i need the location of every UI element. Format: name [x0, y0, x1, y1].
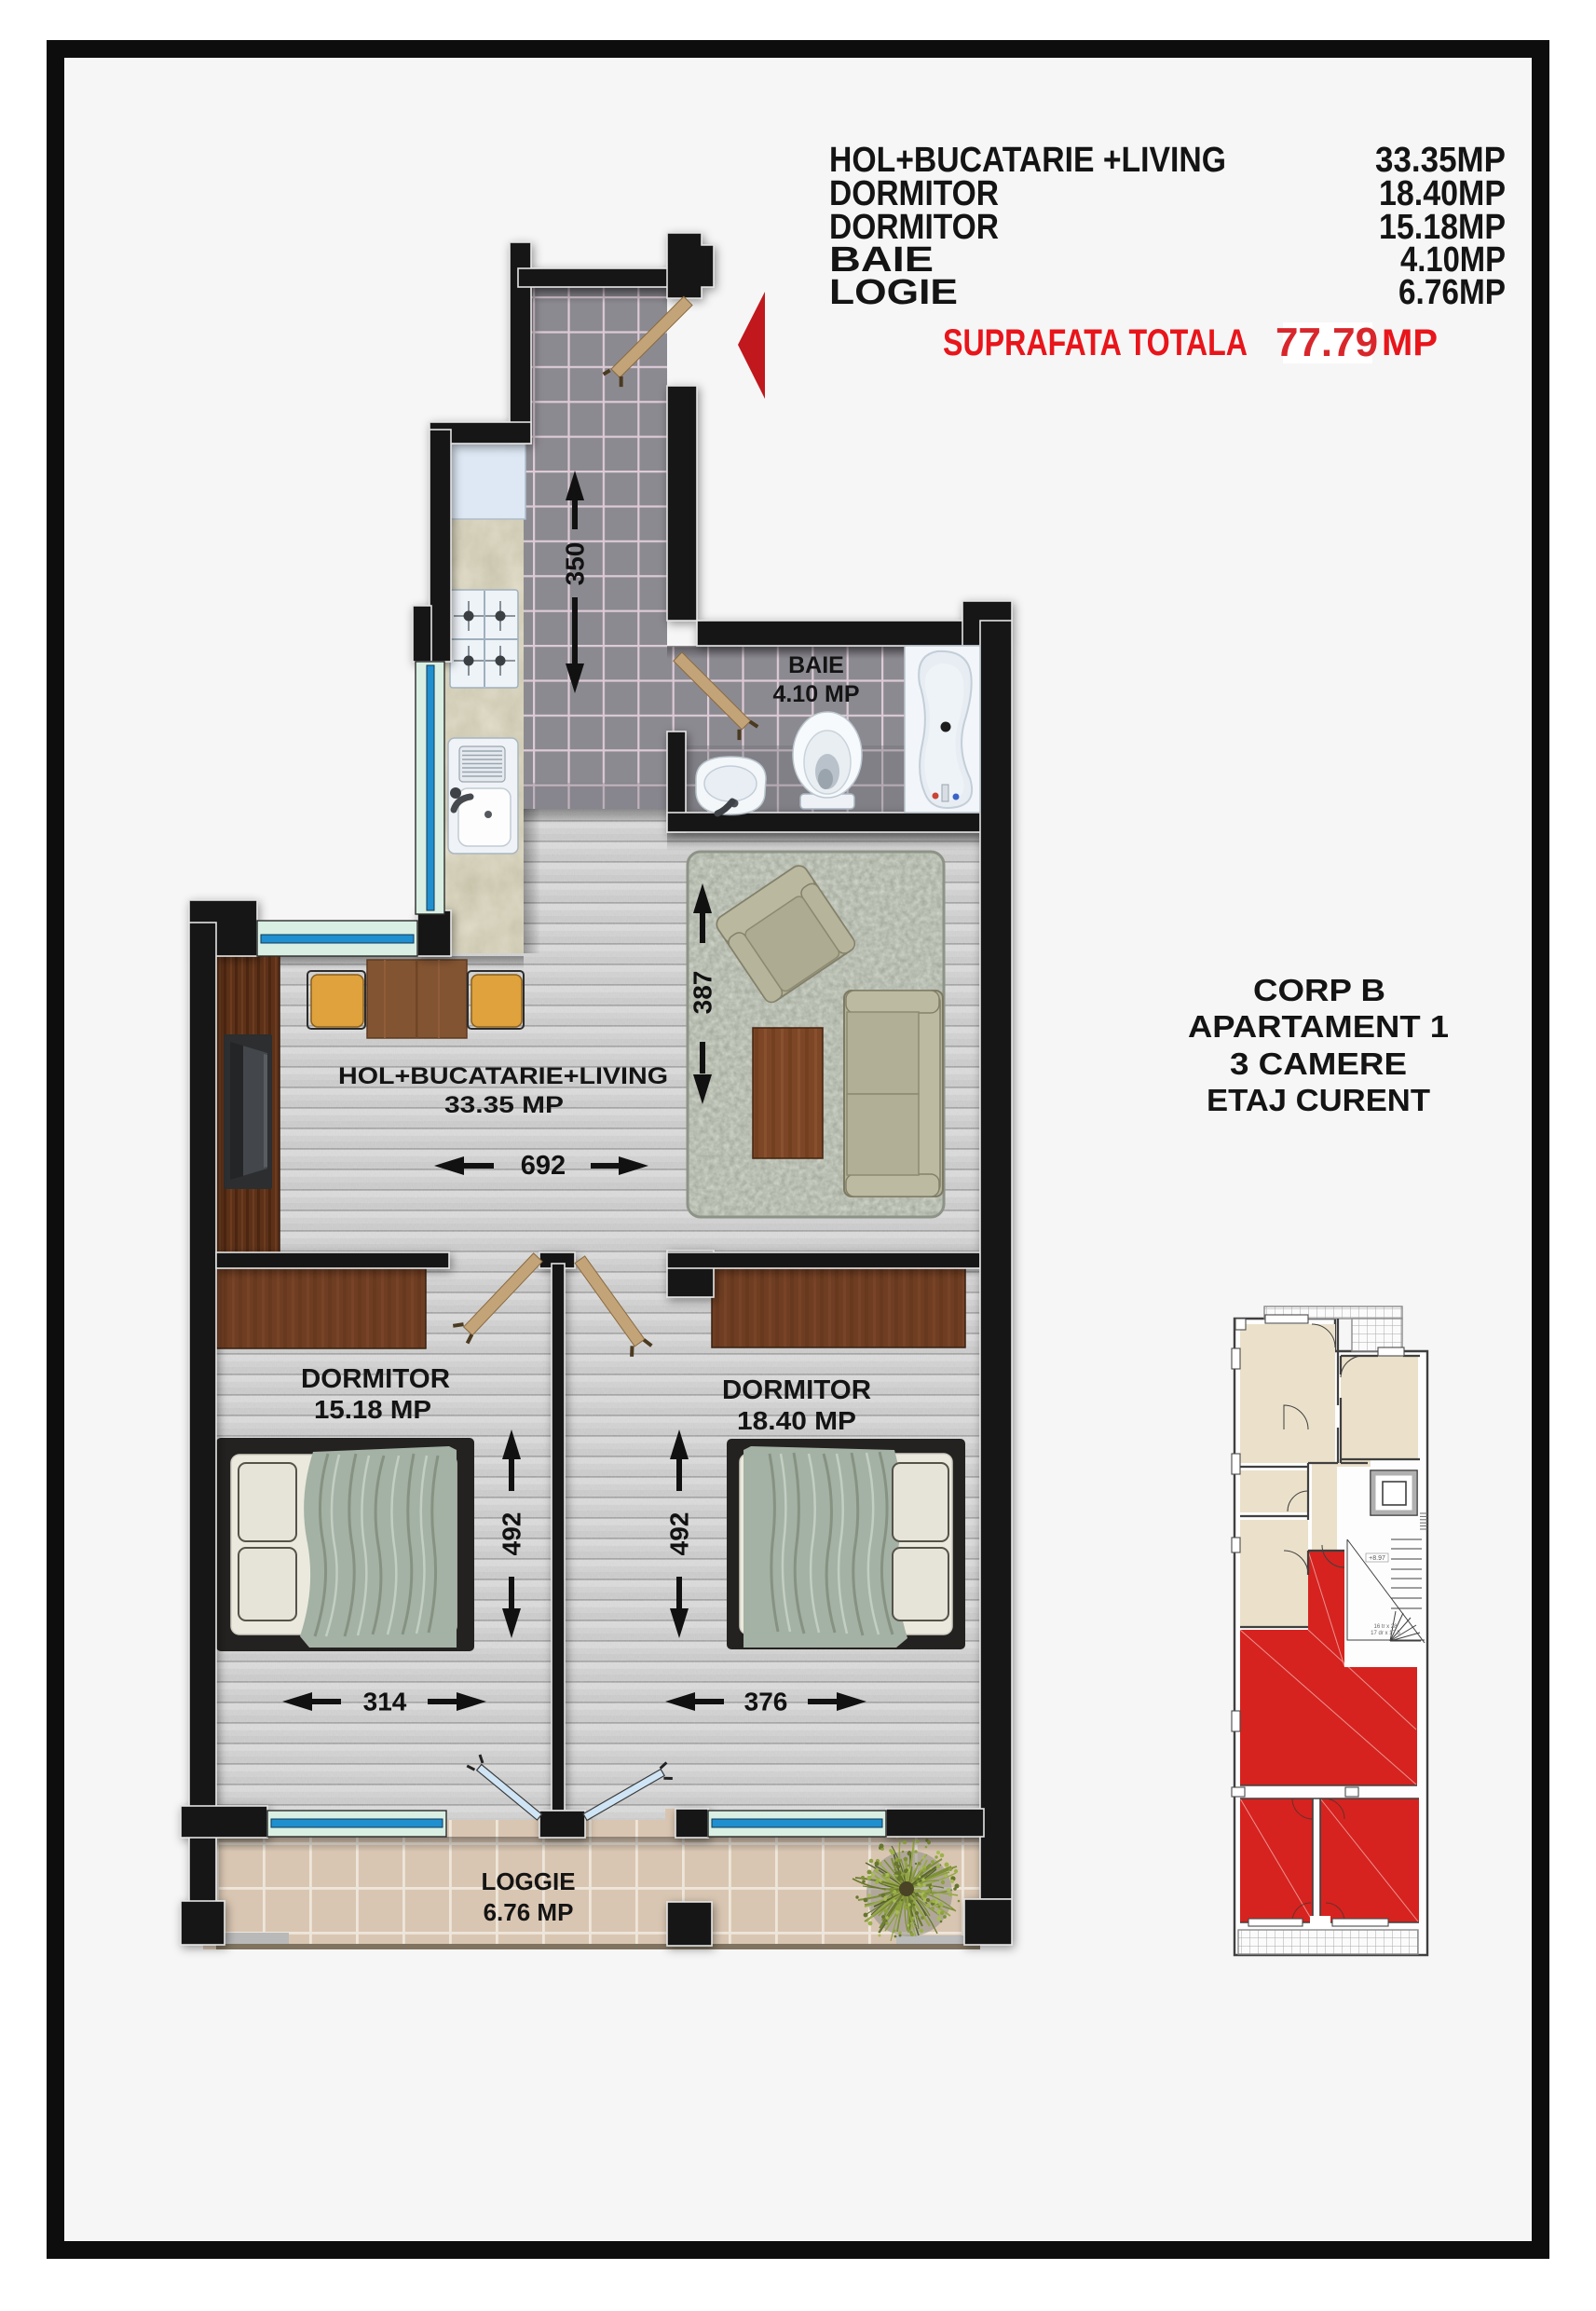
svg-text:17 dr x 17.5: 17 dr x 17.5 — [1371, 1631, 1400, 1636]
svg-text:492: 492 — [498, 1512, 526, 1556]
svg-text:33.35 MP: 33.35 MP — [444, 1092, 564, 1118]
svg-text:HOL+BUCATARIE+LIVING: HOL+BUCATARIE+LIVING — [338, 1063, 668, 1089]
svg-text:387: 387 — [689, 971, 717, 1015]
svg-text:APARTAMENT 1: APARTAMENT 1 — [1188, 1009, 1449, 1044]
svg-text:492: 492 — [665, 1512, 694, 1556]
svg-text:4.10 MP: 4.10 MP — [772, 681, 859, 707]
svg-text:16 tr x 28: 16 tr x 28 — [1373, 1624, 1398, 1630]
svg-text:692: 692 — [521, 1151, 566, 1181]
svg-text:LOGIE: LOGIE — [829, 273, 958, 312]
svg-text:6.76MP: 6.76MP — [1398, 273, 1506, 312]
svg-text:ETAJ CURENT: ETAJ CURENT — [1207, 1083, 1430, 1117]
svg-text:DORMITOR: DORMITOR — [301, 1364, 450, 1394]
svg-text:SUPRAFATA TOTALA: SUPRAFATA TOTALA — [943, 322, 1248, 363]
svg-text:CORP B: CORP B — [1253, 973, 1385, 1007]
svg-text:+8.97: +8.97 — [1369, 1555, 1385, 1562]
svg-text:15.18 MP: 15.18 MP — [314, 1395, 431, 1424]
svg-text:314: 314 — [363, 1688, 407, 1716]
svg-text:LOGGIE: LOGGIE — [481, 1867, 575, 1895]
svg-text:DORMITOR: DORMITOR — [722, 1375, 871, 1405]
svg-text:77.79: 77.79 — [1275, 320, 1378, 365]
svg-text:BAIE: BAIE — [788, 652, 844, 678]
svg-text:350: 350 — [561, 542, 590, 586]
svg-text:3 CAMERE: 3 CAMERE — [1230, 1046, 1407, 1081]
svg-text:18.40 MP: 18.40 MP — [737, 1406, 856, 1435]
svg-text:376: 376 — [744, 1688, 788, 1716]
svg-text:6.76 MP: 6.76 MP — [484, 1898, 574, 1926]
svg-text:MP: MP — [1382, 322, 1438, 363]
